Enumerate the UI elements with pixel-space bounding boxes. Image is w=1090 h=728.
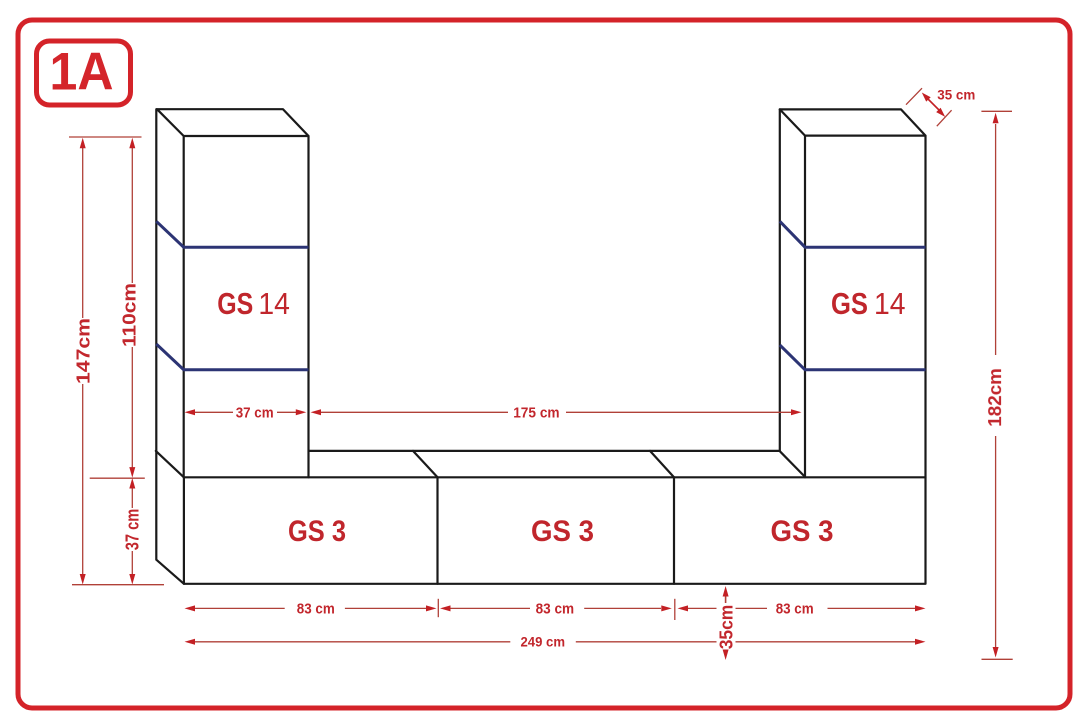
svg-text:83 cm: 83 cm <box>776 600 814 617</box>
svg-text:110cm: 110cm <box>119 283 140 347</box>
svg-text:GS 3: GS 3 <box>771 515 834 548</box>
svg-text:37 cm: 37 cm <box>236 405 274 422</box>
svg-text:249 cm: 249 cm <box>521 634 566 649</box>
svg-text:14: 14 <box>258 286 290 321</box>
svg-text:83 cm: 83 cm <box>536 600 575 617</box>
svg-text:1A: 1A <box>50 43 114 102</box>
svg-text:GS 3: GS 3 <box>531 515 594 548</box>
svg-text:GS: GS <box>217 286 253 321</box>
svg-text:175 cm: 175 cm <box>513 405 559 422</box>
svg-text:35cm: 35cm <box>716 605 737 650</box>
svg-text:37 cm: 37 cm <box>122 509 143 551</box>
svg-text:GS: GS <box>831 286 868 321</box>
svg-text:83 cm: 83 cm <box>297 600 335 617</box>
svg-text:GS 3: GS 3 <box>288 515 346 548</box>
svg-text:147cm: 147cm <box>73 318 94 384</box>
svg-text:14: 14 <box>874 286 906 321</box>
svg-text:35 cm: 35 cm <box>937 87 975 102</box>
svg-text:182cm: 182cm <box>984 368 1005 427</box>
